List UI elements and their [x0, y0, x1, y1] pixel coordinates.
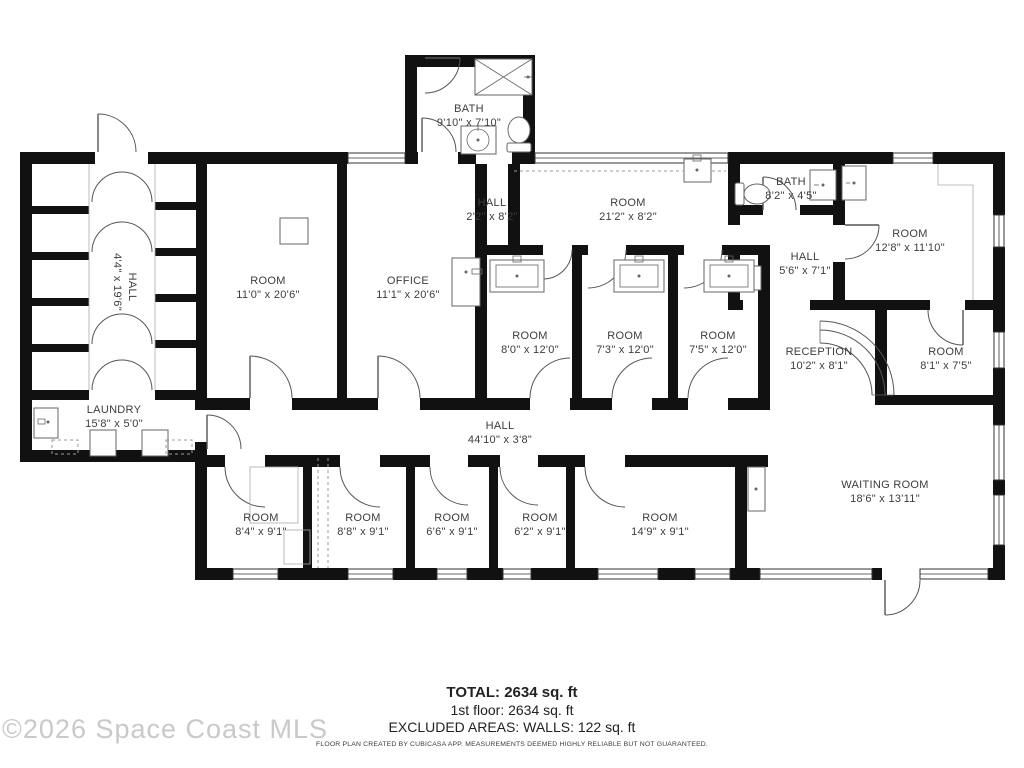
total-area-text: TOTAL: 2634 sq. ft: [0, 684, 1024, 701]
waiting-room-door-arc: [885, 580, 920, 615]
label-room-mid2-dims: 7'3" x 12'0": [596, 344, 654, 356]
sink-icon: [704, 256, 754, 292]
room-left-door-arc: [250, 356, 292, 398]
laundry-door-arc: [207, 415, 241, 449]
dryer-icon: [142, 430, 168, 456]
room-b4-door-arc: [500, 467, 538, 505]
label-room-left-name: ROOM: [250, 275, 285, 287]
label-hall-vertical-dims: 4'4" x 19'6": [111, 253, 123, 311]
sink-icon: [614, 256, 664, 292]
label-room-right-mid-dims: 8'1" x 7'5": [920, 360, 971, 372]
label-room-top-name: ROOM: [610, 197, 645, 209]
label-bath-top-name: BATH: [454, 103, 484, 115]
label-hall-right-dims: 5'6" x 7'1": [779, 265, 830, 277]
watermark-text: ©2026 Space Coast MLS: [2, 714, 328, 745]
label-hall-right-name: HALL: [791, 251, 820, 263]
room-right-top-door-arc: [845, 225, 879, 259]
room-mid2-bottom-door-arc: [612, 358, 652, 398]
label-room-mid1-name: ROOM: [512, 330, 547, 342]
label-office-name: OFFICE: [387, 275, 429, 287]
label-room-b5-dims: 14'9" x 9'1": [631, 526, 689, 538]
label-office-dims: 11'1" x 20'6": [376, 289, 439, 301]
label-room-right-top-name: ROOM: [892, 228, 927, 240]
floor-plan-drawing: BATH 9'10" x 7'10" HALL 2'2" x 8'2" ROOM…: [0, 0, 1024, 768]
label-room-left-dims: 11'0" x 20'6": [236, 289, 299, 301]
label-room-b5-name: ROOM: [642, 512, 677, 524]
label-hall-main-name: HALL: [486, 420, 515, 432]
sink-icon: [684, 155, 711, 182]
entry-door-arc: [98, 114, 136, 152]
label-room-b3-name: ROOM: [434, 512, 469, 524]
label-room-b2-name: ROOM: [345, 512, 380, 524]
room-b2-door-arc: [340, 467, 380, 507]
label-room-b1-name: ROOM: [243, 512, 278, 524]
room-mid1-top-door-arc: [543, 250, 572, 279]
label-reception-dims: 10'2" x 8'1": [790, 360, 848, 372]
sink-icon: [461, 126, 496, 154]
label-room-top-dims: 21'2" x 8'2": [599, 211, 657, 223]
label-waiting-name: WAITING ROOM: [841, 479, 929, 491]
label-room-mid3-dims: 7'5" x 12'0": [689, 344, 747, 356]
cabinet-icon: [280, 218, 308, 244]
sink-icon: [490, 256, 544, 292]
office-door-arc: [378, 356, 420, 398]
fixtures: [34, 59, 973, 568]
label-hall-main-dims: 44'10" x 3'8": [468, 434, 532, 446]
room-b1-door-arc: [225, 467, 265, 507]
label-hall-vertical-name: HALL: [126, 273, 138, 302]
label-bath-top-dims: 9'10" x 7'10": [437, 117, 501, 129]
label-laundry-name: LAUNDRY: [87, 404, 142, 416]
sink-icon: [34, 408, 58, 438]
label-waiting-dims: 18'6" x 13'11": [850, 493, 920, 505]
label-room-mid3-name: ROOM: [700, 330, 735, 342]
floor-plan-page: BATH 9'10" x 7'10" HALL 2'2" x 8'2" ROOM…: [0, 0, 1024, 768]
washer-icon: [90, 430, 116, 456]
sink-icon: [748, 467, 765, 511]
label-room-b2-dims: 8'8" x 9'1": [337, 526, 388, 538]
label-bath-right-dims: 8'2" x 4'5": [765, 190, 816, 202]
label-laundry-dims: 15'8" x 5'0": [85, 418, 143, 430]
sink-icon: [842, 166, 866, 200]
label-room-right-top-dims: 12'8" x 11'10": [875, 242, 945, 254]
label-reception-name: RECEPTION: [786, 346, 853, 358]
label-hall-top-dims: 2'2" x 8'2": [466, 211, 517, 223]
room-right-mid-door-arc: [928, 310, 963, 345]
room-b3-door-arc: [430, 467, 468, 505]
shower-icon: [475, 59, 532, 95]
label-bath-right-name: BATH: [776, 176, 806, 188]
sink-icon: [452, 258, 482, 306]
label-room-b3-dims: 6'6" x 9'1": [426, 526, 477, 538]
label-room-right-mid-name: ROOM: [928, 346, 963, 358]
label-room-mid1-dims: 8'0" x 12'0": [501, 344, 559, 356]
label-room-b1-dims: 8'4" x 9'1": [235, 526, 286, 538]
label-room-b4-dims: 6'2" x 9'1": [514, 526, 565, 538]
room-b5-door-arc: [585, 467, 625, 507]
ceiling-line: [938, 164, 973, 300]
toilet-icon: [507, 117, 531, 152]
label-room-mid2-name: ROOM: [607, 330, 642, 342]
room-mid1-bottom-door-arc: [530, 358, 570, 398]
room-mid3-bottom-door-arc: [688, 358, 728, 398]
label-hall-top-name: HALL: [478, 197, 507, 209]
label-room-b4-name: ROOM: [522, 512, 557, 524]
